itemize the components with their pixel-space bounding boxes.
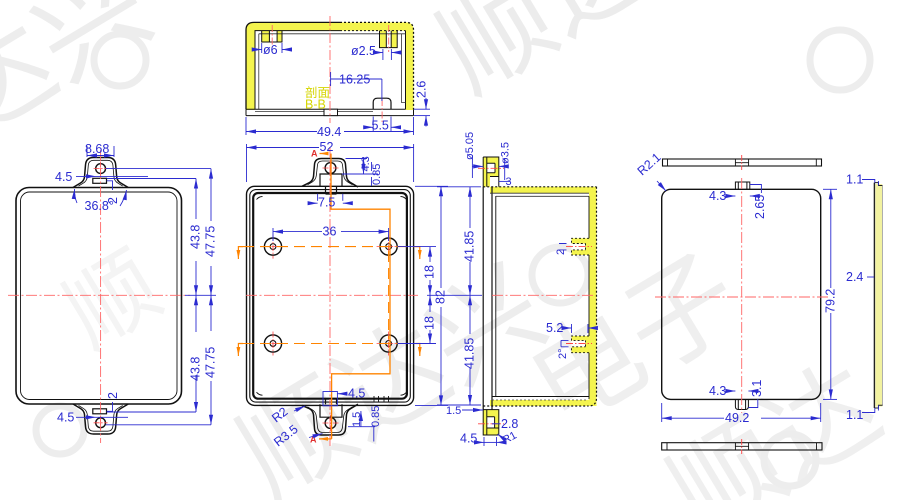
svg-text:3.1: 3.1 (750, 380, 764, 397)
svg-text:ø3.5: ø3.5 (500, 142, 512, 164)
svg-text:5.2: 5.2 (546, 321, 563, 335)
svg-text:4.5: 4.5 (460, 432, 477, 446)
svg-text:43.8: 43.8 (189, 357, 203, 381)
svg-text:41.85: 41.85 (463, 231, 477, 262)
svg-text:达兴: 达兴 (0, 0, 171, 161)
svg-text:顺达: 顺达 (419, 0, 671, 116)
svg-text:36: 36 (323, 225, 337, 239)
svg-text:顺: 顺 (49, 235, 178, 367)
svg-text:47.75: 47.75 (204, 226, 218, 257)
svg-text:18: 18 (423, 265, 437, 279)
svg-text:0.85: 0.85 (370, 406, 382, 427)
svg-text:16.25: 16.25 (339, 73, 370, 87)
svg-text:43.8: 43.8 (189, 225, 203, 249)
svg-text:B-B: B-B (305, 98, 326, 112)
svg-text:ø6: ø6 (263, 43, 278, 57)
svg-text:8.68: 8.68 (85, 142, 109, 156)
svg-text:52: 52 (320, 140, 334, 154)
svg-text:4.5: 4.5 (57, 411, 74, 425)
svg-text:47.75: 47.75 (204, 347, 218, 378)
svg-text:2: 2 (106, 392, 120, 399)
svg-text:18: 18 (423, 316, 437, 330)
svg-text:ø5.05: ø5.05 (464, 132, 476, 160)
svg-text:49.4: 49.4 (317, 125, 341, 139)
svg-text:41.85: 41.85 (463, 338, 477, 369)
svg-text:79.2: 79.2 (824, 289, 838, 313)
svg-text:2.8: 2.8 (501, 417, 518, 431)
svg-text:R2.1: R2.1 (635, 150, 664, 178)
svg-text:顺达兴: 顺达兴 (219, 245, 565, 500)
svg-text:1.1: 1.1 (846, 173, 863, 187)
svg-text:3: 3 (506, 176, 512, 188)
svg-text:1.5: 1.5 (446, 405, 461, 417)
svg-text:49.2: 49.2 (725, 411, 749, 425)
svg-text:5.5: 5.5 (372, 119, 389, 133)
svg-text:2.4: 2.4 (846, 270, 863, 284)
svg-text:4.3: 4.3 (709, 384, 726, 398)
svg-text:4.5: 4.5 (348, 387, 365, 401)
svg-text:4.5: 4.5 (55, 170, 72, 184)
svg-text:1.1: 1.1 (846, 408, 863, 422)
svg-text:1.5: 1.5 (351, 412, 363, 427)
svg-text:4.3: 4.3 (709, 189, 726, 203)
svg-text:2.65: 2.65 (753, 195, 767, 219)
svg-text:A: A (311, 149, 318, 159)
svg-text:2: 2 (106, 197, 120, 204)
svg-text:82: 82 (434, 290, 448, 304)
svg-text:2.6: 2.6 (415, 81, 429, 98)
svg-text:0.85: 0.85 (371, 164, 383, 185)
svg-text:7.5: 7.5 (318, 196, 335, 210)
svg-text:2°: 2° (557, 348, 569, 359)
svg-text:ø2.5: ø2.5 (351, 44, 376, 58)
